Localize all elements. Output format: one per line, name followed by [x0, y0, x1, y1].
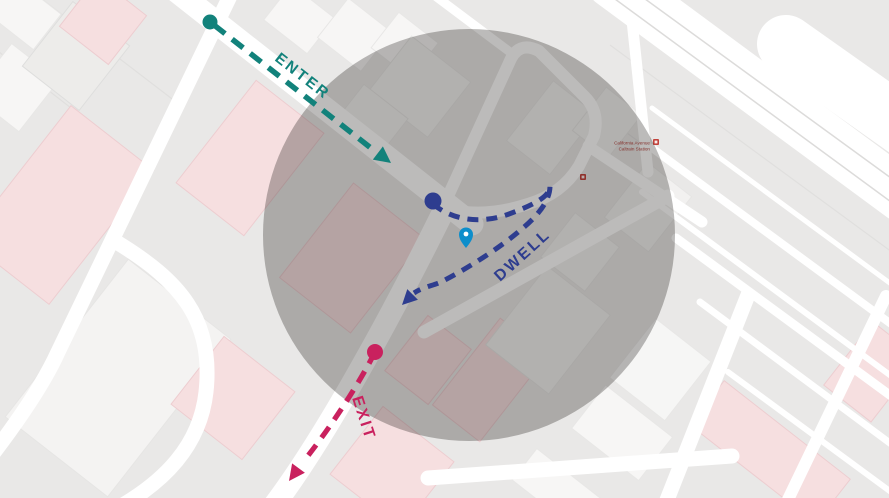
exit-start-dot [367, 344, 383, 360]
map-visualization: California Avenue Caltrain Station ENTER… [0, 0, 889, 498]
pin-center-dot [464, 232, 469, 237]
map-canvas: California Avenue Caltrain Station ENTER… [0, 0, 889, 498]
station-rail-icon-glyph [655, 141, 658, 144]
dwell-start-dot [425, 193, 442, 210]
enter-start-dot [203, 15, 218, 30]
